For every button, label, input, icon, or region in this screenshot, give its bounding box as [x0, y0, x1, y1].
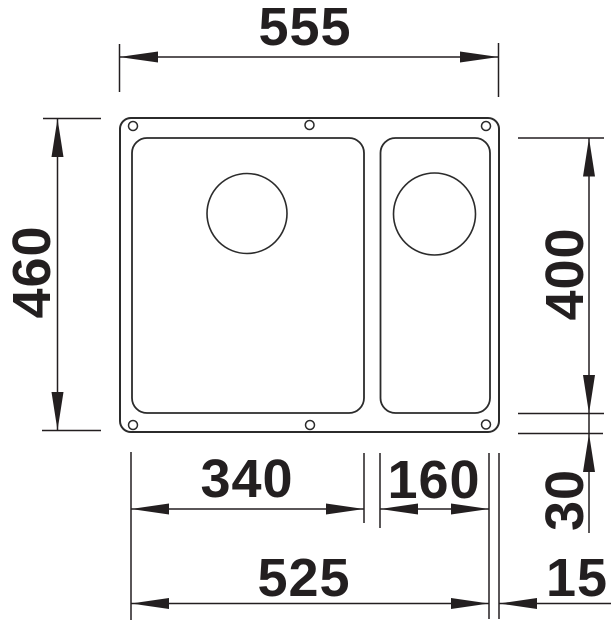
dim-overall-depth: 460 [2, 119, 101, 431]
small-bowl-outline [381, 138, 491, 413]
arrowhead-up [583, 138, 595, 177]
mounting-hole-bottom-right [482, 420, 491, 429]
dimension-drawing-canvas: 555 460 400 30 [0, 0, 611, 625]
sink-outer-outline [120, 118, 499, 432]
dim-right-edge-offset-label: 15 [546, 548, 608, 608]
mounting-hole-top-center [305, 121, 314, 130]
sink-dimension-drawing: 555 460 400 30 [0, 0, 611, 625]
mounting-hole-top-right [482, 122, 491, 131]
mounting-hole-bottom-left [129, 421, 138, 430]
main-bowl-outline [132, 138, 364, 413]
arrowhead-left [131, 504, 169, 515]
dim-small-bowl-width: 160 [380, 450, 489, 619]
dim-bowl-span-width-label: 525 [257, 548, 350, 608]
arrowhead-up [583, 434, 595, 473]
dim-bowl-span-width: 525 [131, 548, 489, 609]
arrowhead-down [583, 375, 595, 414]
arrowhead-right [460, 52, 499, 63]
dim-main-bowl-width-label: 340 [200, 449, 293, 509]
arrowhead-left [499, 598, 537, 609]
dim-overall-width-label: 555 [258, 0, 351, 57]
arrowhead-left [131, 598, 169, 609]
dim-bottom-edge-offset-label: 30 [535, 469, 595, 531]
arrowhead-up [52, 119, 64, 158]
small-bowl-drain-circle [394, 173, 476, 255]
main-bowl-drain-circle [207, 174, 287, 254]
mounting-hole-top-left [129, 122, 138, 131]
dim-small-bowl-width-label: 160 [387, 450, 480, 510]
dim-overall-depth-label: 460 [2, 225, 62, 318]
dim-bowl-depth-label: 400 [535, 227, 595, 320]
dim-overall-width: 555 [120, 0, 499, 97]
arrowhead-left [120, 52, 159, 63]
dim-bottom-edge-offset: 30 [518, 414, 603, 534]
sink-body [120, 118, 499, 432]
arrowhead-right [451, 598, 489, 609]
arrowhead-down [52, 392, 64, 431]
dim-bowl-depth: 400 [518, 138, 604, 414]
mounting-hole-bottom-center [306, 421, 315, 430]
arrowhead-right [326, 504, 364, 515]
